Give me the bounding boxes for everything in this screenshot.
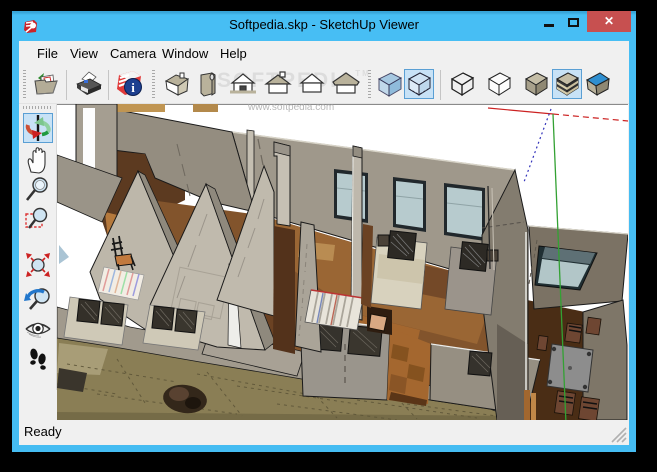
svg-text:www.softpedia.com: www.softpedia.com: [247, 104, 334, 113]
svg-text:i: i: [131, 80, 135, 95]
